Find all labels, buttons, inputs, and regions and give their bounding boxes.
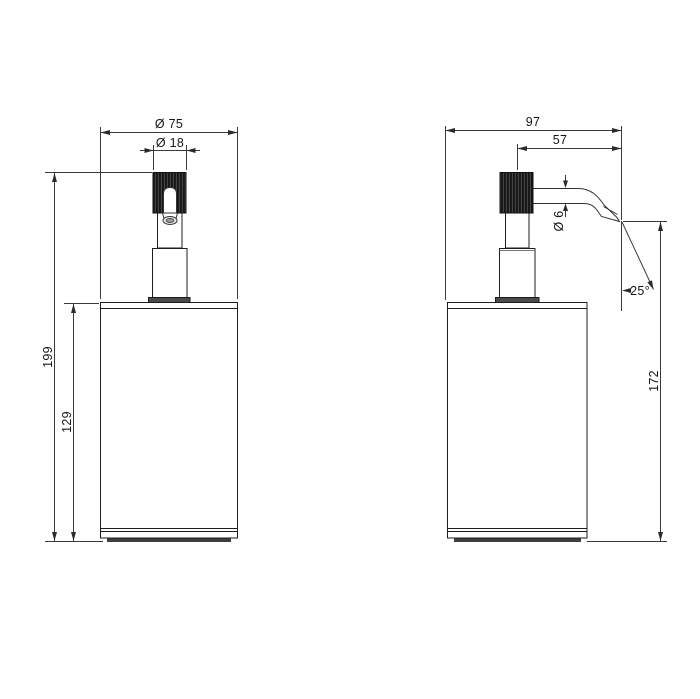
dim-label-body-height: 129 [61, 411, 74, 433]
front-base-shadow [107, 539, 231, 543]
side-view [446, 126, 668, 542]
drawing-canvas: Ø 75 Ø 18 199 129 97 57 Ø 6 25° 172 [0, 0, 700, 699]
side-pump-collar [500, 249, 536, 298]
front-view-part [101, 173, 238, 543]
dim-spout-reach [518, 144, 622, 170]
dim-label-body-diameter: Ø 75 [155, 118, 183, 131]
dim-label-knob-diameter: Ø 18 [156, 137, 184, 150]
technical-drawing [0, 0, 700, 699]
front-pump-flange [149, 298, 191, 303]
dim-label-total-height: 199 [42, 346, 55, 368]
front-spout-slot [164, 188, 177, 214]
side-pump-shaft [506, 213, 530, 248]
front-spout-outlet-hole [166, 219, 174, 223]
side-pump-knob [500, 173, 533, 214]
side-pump-flange [496, 298, 540, 303]
front-view [45, 127, 238, 542]
side-base-shadow [454, 539, 581, 543]
dim-label-total-depth: 97 [526, 116, 541, 129]
side-body-outline [448, 303, 588, 539]
side-view-part [448, 173, 620, 543]
dim-label-spout-reach: 57 [553, 134, 568, 147]
front-pump-collar [153, 249, 188, 298]
dim-label-spout-diameter: Ø 6 [553, 210, 566, 231]
dim-label-spout-outlet-height: 172 [648, 370, 661, 392]
dim-label-spout-angle: 25° [630, 285, 650, 298]
side-spout-tube [533, 189, 620, 222]
front-body-outline [101, 303, 238, 539]
